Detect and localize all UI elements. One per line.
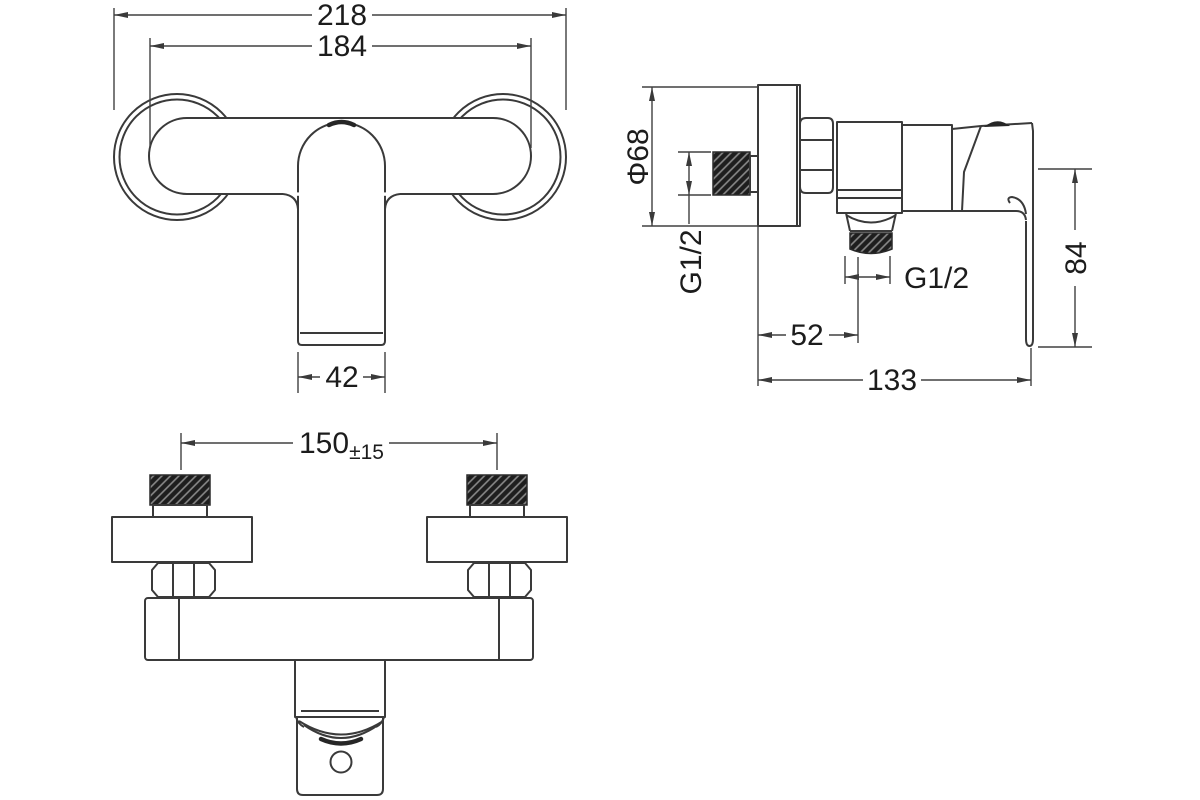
hex-nut-left [152, 563, 215, 597]
valve-body [837, 122, 902, 213]
dim-phi68-label: Φ68 [622, 128, 655, 185]
wall-plate [758, 85, 800, 226]
technical-drawing-canvas: 218 184 42 [0, 0, 1200, 800]
dim-184-label: 184 [317, 30, 367, 63]
dim-52-label: 52 [790, 319, 823, 352]
dim-218-label: 218 [317, 0, 367, 32]
shower-mixer-drawing: 218 184 42 [0, 0, 1200, 800]
inlet-nipple-right [467, 475, 527, 505]
handle-bottom [295, 660, 385, 795]
handle-screw-hole [331, 752, 352, 773]
dim-handle-drop: 84 [1038, 169, 1093, 347]
escutcheon-plate-right [427, 517, 567, 562]
dim-84-label: 84 [1060, 241, 1093, 274]
cartridge-housing [902, 125, 952, 211]
side-view: Φ68 G1/2 G1/2 52 1 [622, 85, 1093, 397]
inlet-thread-nipple [713, 152, 750, 195]
mixer-body-bottom [145, 598, 533, 660]
hex-nut-right [468, 563, 531, 597]
dim-inlet-spacing: 150±15 [181, 427, 497, 470]
outlet-connector [846, 213, 896, 254]
bottom-view: 150±15 [112, 427, 567, 795]
dim-g12-outlet-label: G1/2 [904, 262, 969, 295]
dim-150-tolerance-label: ±15 [349, 441, 384, 464]
dim-inlet-thread: G1/2 [675, 152, 711, 295]
dim-g12-inlet-label: G1/2 [675, 229, 708, 294]
escutcheon-plate-left [112, 517, 252, 562]
outlet-thread [850, 233, 892, 254]
dim-42-label: 42 [325, 361, 358, 394]
dim-handle-width: 42 [298, 352, 385, 394]
hex-nut [800, 118, 833, 193]
dim-outlet-thread: G1/2 [845, 256, 969, 295]
handle-side [952, 121, 1033, 346]
dim-wall-to-outlet: 52 [758, 226, 858, 386]
front-view: 218 184 42 [114, 0, 566, 394]
dim-133-label: 133 [867, 364, 917, 397]
inlet-nipple-left [150, 475, 210, 505]
dim-total-depth: 133 [758, 348, 1031, 397]
handle-lever [298, 123, 385, 346]
